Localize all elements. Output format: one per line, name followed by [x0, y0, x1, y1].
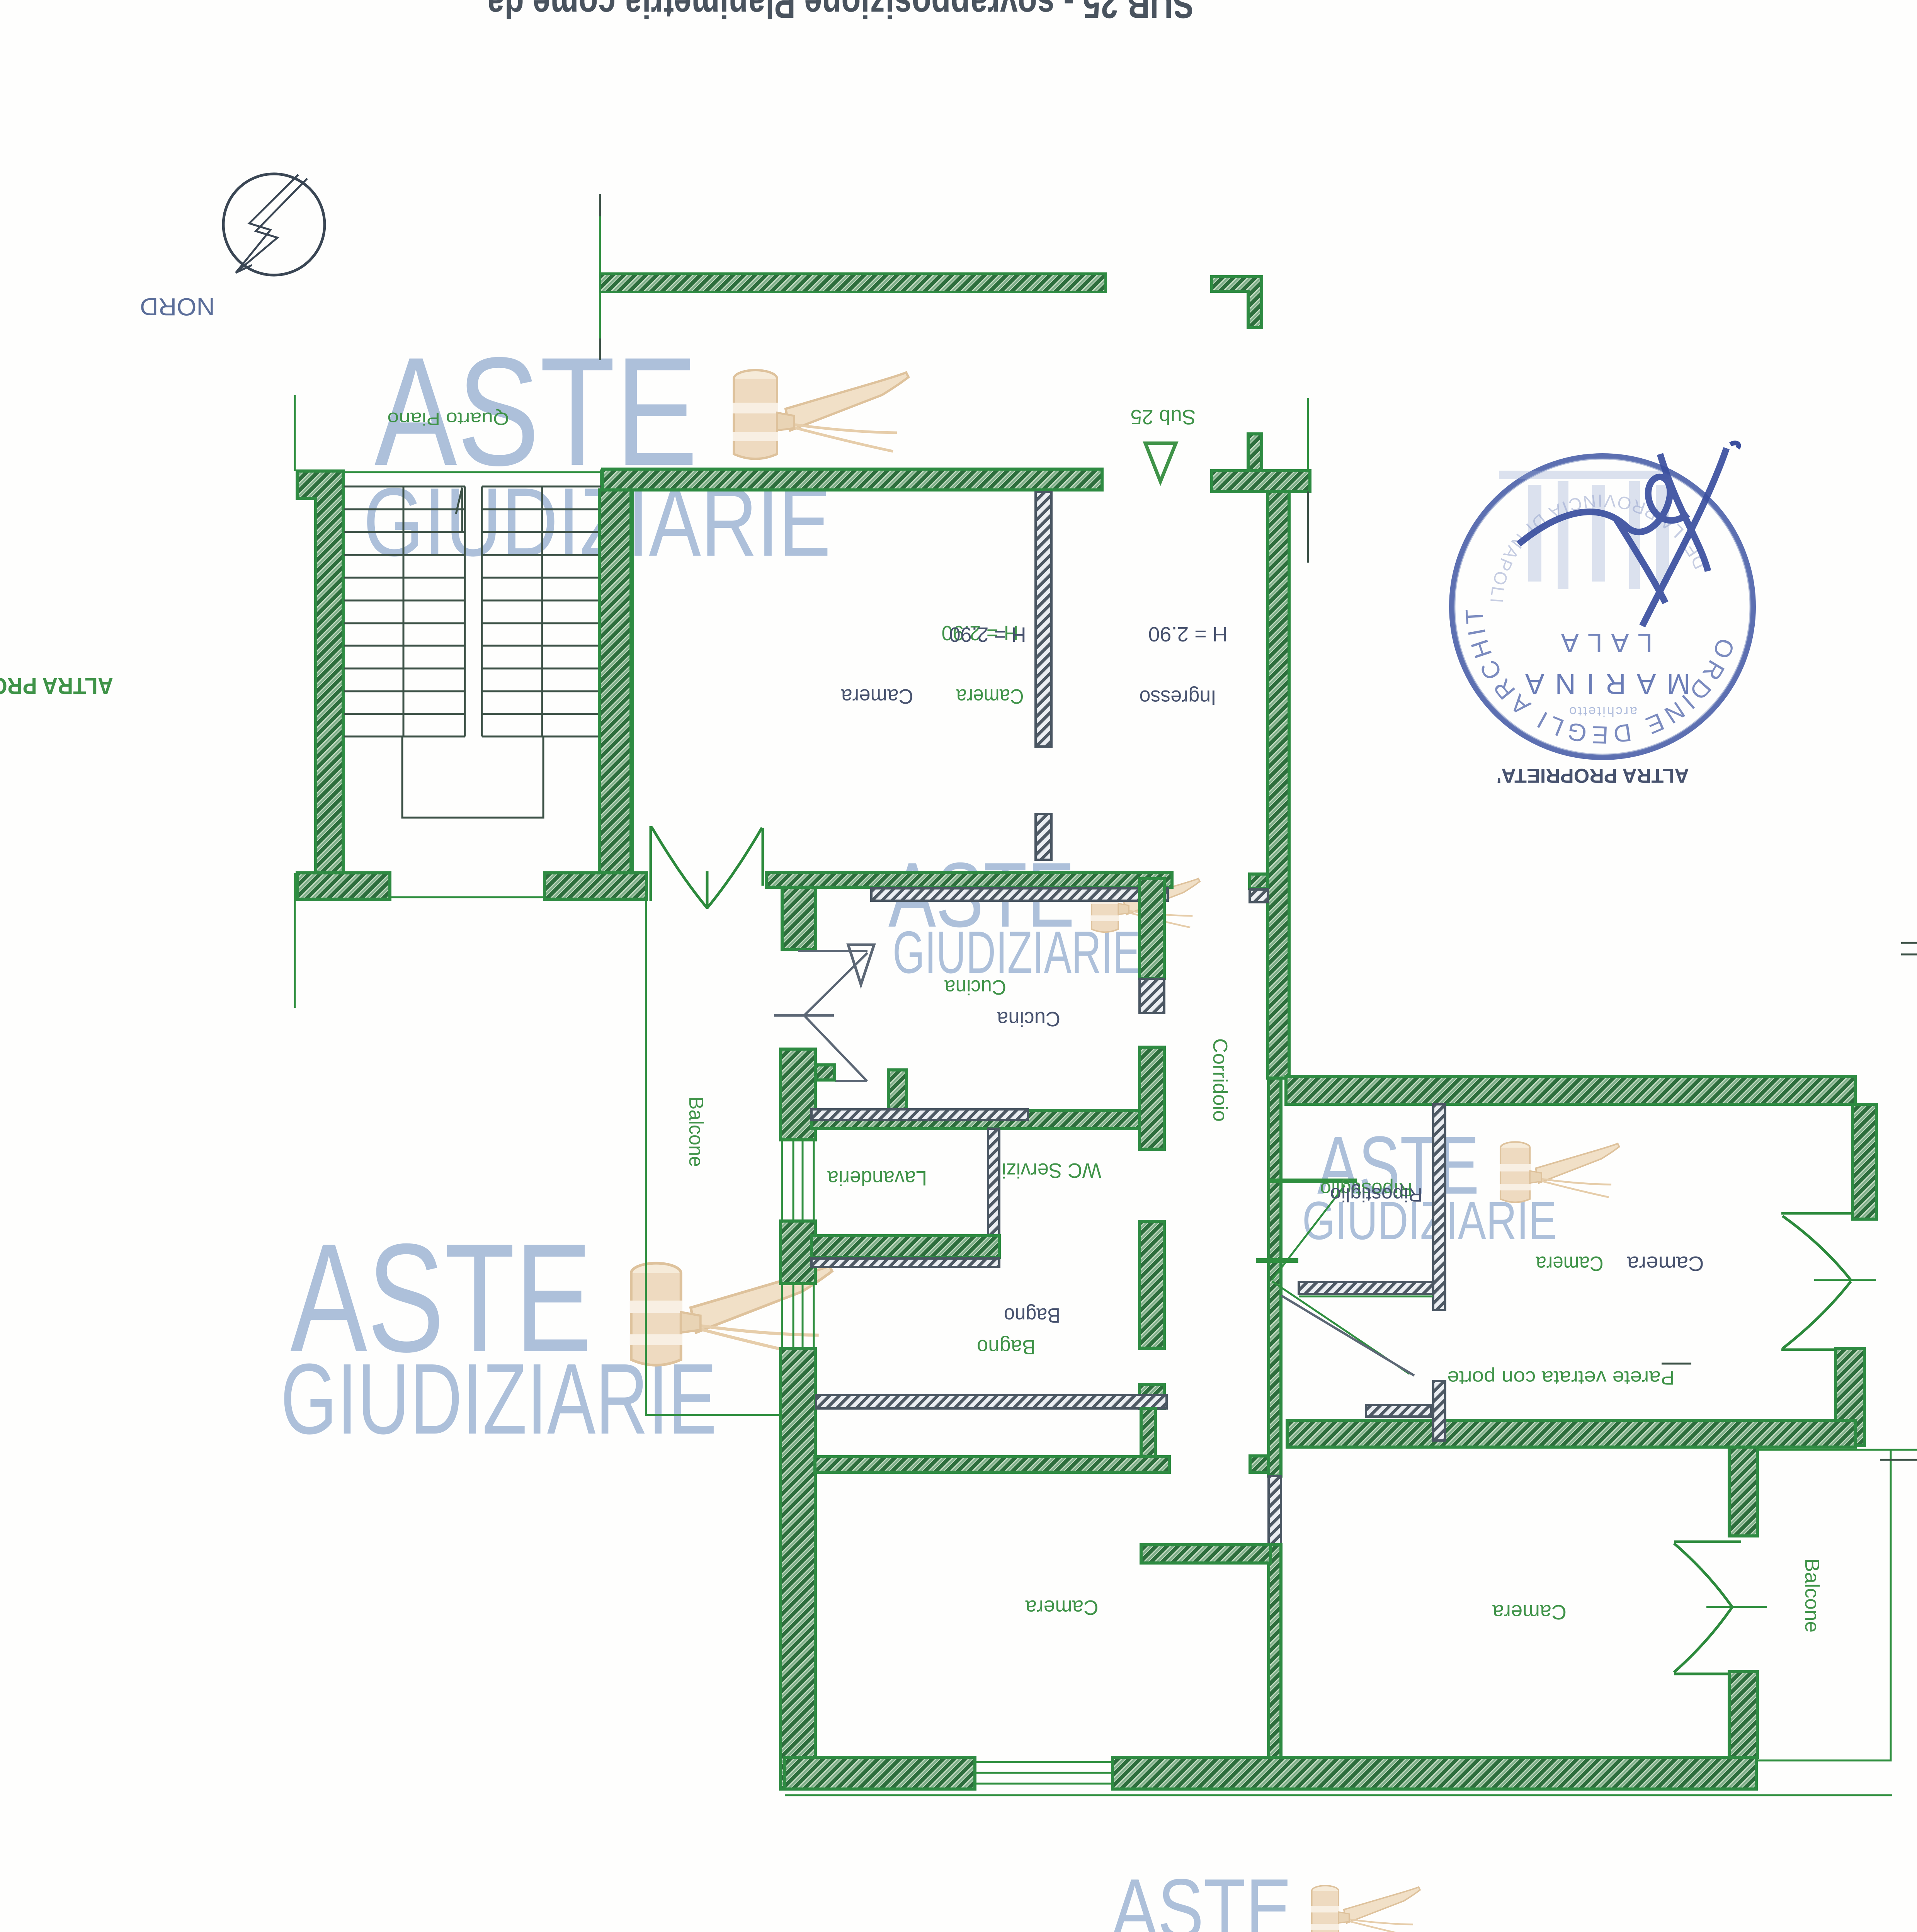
svg-text:H = 2.90: H = 2.90 [1148, 622, 1228, 646]
svg-text:Camera: Camera [1025, 1596, 1099, 1619]
svg-text:SUB 25 - sovrapposizione Plani: SUB 25 - sovrapposizione Planimetria com… [486, 0, 1194, 26]
svg-text:Sub 25: Sub 25 [1131, 405, 1196, 429]
svg-text:Ripostiglio: Ripostiglio [1330, 1184, 1423, 1206]
svg-text:MARINA: MARINA [1514, 668, 1691, 700]
svg-text:Ingresso: Ingresso [1140, 686, 1216, 709]
svg-text:Cucina: Cucina [997, 1007, 1060, 1031]
svg-text:Camera: Camera [1492, 1600, 1567, 1624]
svg-text:Camera: Camera [1536, 1252, 1604, 1275]
svg-text:Corridoio: Corridoio [1209, 1038, 1231, 1122]
svg-text:Bagno: Bagno [1004, 1304, 1060, 1327]
svg-text:Parete vetrata con porte: Parete vetrata con porte [1448, 1367, 1675, 1389]
svg-text:WC Servizi: WC Servizi [1002, 1159, 1101, 1182]
svg-text:architetto: architetto [1568, 704, 1637, 719]
svg-text:ALTRA PROPRIETA': ALTRA PROPRIETA' [1497, 764, 1689, 787]
svg-text:Cucina: Cucina [944, 976, 1006, 999]
svg-text:NORD: NORD [140, 293, 215, 321]
svg-text:Camera: Camera [956, 685, 1024, 708]
svg-text:LALA: LALA [1552, 628, 1652, 658]
svg-text:Camera: Camera [841, 685, 913, 708]
svg-text:Camera: Camera [1627, 1252, 1704, 1275]
svg-text:ALTRA PROPRIETA': ALTRA PROPRIETA' [0, 673, 113, 699]
svg-text:Balcone: Balcone [1801, 1558, 1823, 1633]
svg-text:Balcone: Balcone [685, 1097, 707, 1167]
svg-text:Bagno: Bagno [977, 1335, 1036, 1359]
svg-text:Quarto Piano: Quarto Piano [388, 409, 509, 429]
svg-text:Lavanderia: Lavanderia [827, 1167, 927, 1190]
svg-text:H = 2.90: H = 2.90 [949, 623, 1026, 646]
svg-text:ASTE: ASTE [1112, 1861, 1292, 1932]
